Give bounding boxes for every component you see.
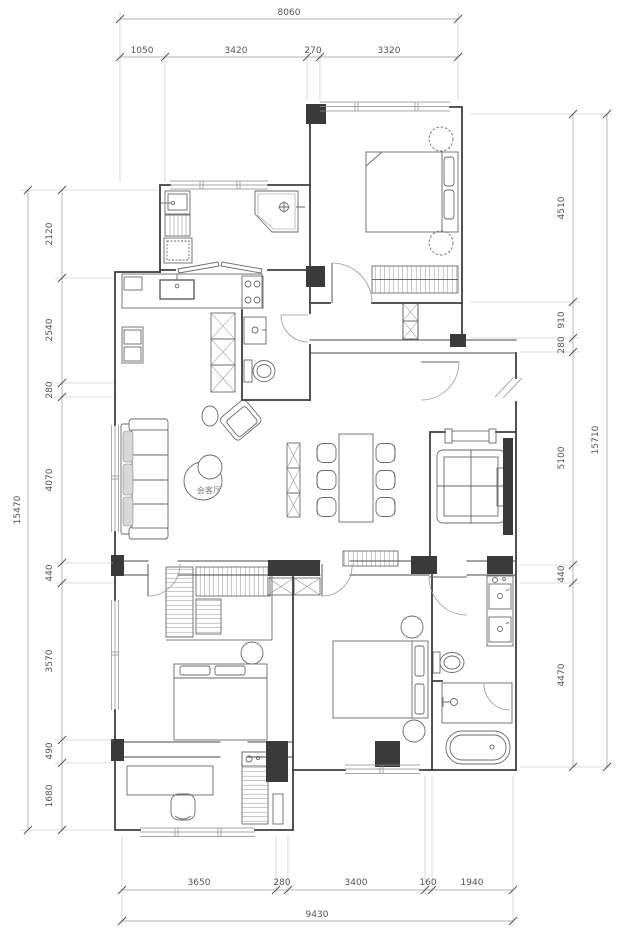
sofa [121,419,168,539]
dim-label: 490 [45,742,55,759]
dim-label: 4470 [557,663,567,686]
floor-plan-drawing: 会客厅 [0,0,623,935]
living-room-label: 会客厅 [197,485,221,495]
wardrobe [372,266,458,293]
entry-break-symbol [495,377,522,398]
washing-machine [165,215,190,236]
side-cabinet [122,327,143,363]
stool [401,616,423,638]
stool [403,720,425,742]
kitchen-counter [122,274,262,308]
desk-chair [171,794,195,820]
toilet [433,652,464,673]
dim-label: 280 [45,381,55,398]
dim-label: 15470 [13,495,23,524]
tall-cabinet [211,313,235,392]
dim-label: 280 [557,336,567,353]
dim-label: 9430 [306,910,329,920]
dim-label: 3650 [188,878,211,888]
nightstand-stool [429,231,453,255]
toilet [244,360,275,382]
dim-label: 3320 [378,46,401,56]
dim-label: 8060 [278,8,301,18]
dim-label: 2540 [45,318,55,341]
wardrobe [343,551,398,566]
sideboard [287,443,300,517]
folding-door [178,262,262,273]
dim-label: 160 [419,878,436,888]
dim-label: 1050 [131,46,154,56]
corner-shower [255,191,305,232]
nightstand-stool [429,127,453,151]
dim-label: 3570 [45,649,55,672]
armchair [219,398,263,441]
dim-label: 4070 [45,468,55,491]
elevator-shaft [403,303,418,339]
floor-plan-canvas: 会客厅 [0,0,623,935]
dim-label: 1680 [45,784,55,807]
bathtub [446,731,510,764]
master-bed [366,152,458,232]
structural-columns [111,104,513,782]
stool [241,642,263,664]
dim-label: 3420 [225,46,248,56]
cabinet-x [268,578,320,595]
side-table [202,406,218,426]
dim-label: 3400 [345,878,368,888]
desk [127,766,213,795]
dim-label: 5100 [557,446,567,469]
laundry-cabinet [164,238,192,263]
laundry-sink [161,191,190,214]
bed [174,664,267,740]
dim-label: 440 [45,564,55,581]
powder-sink [244,317,266,344]
lounge-chair [437,450,505,523]
dim-label: 440 [557,565,567,582]
dim-label: 270 [304,46,321,56]
dim-label: 280 [273,878,290,888]
extension-lines [20,12,612,926]
walk-in-closet [166,567,272,640]
dim-label: 1940 [461,878,484,888]
vanity-sinks [487,576,513,646]
shower-enclosure [442,683,512,723]
dim-label: 910 [557,311,567,328]
dining-table [339,434,373,522]
gas-stove [242,276,263,308]
dim-label: 4510 [557,196,567,219]
bed [333,641,428,718]
dim-label: 15710 [591,425,601,454]
dimension-ticks [24,15,611,925]
kitchen-sink [160,274,194,299]
dim-label: 2120 [45,222,55,245]
